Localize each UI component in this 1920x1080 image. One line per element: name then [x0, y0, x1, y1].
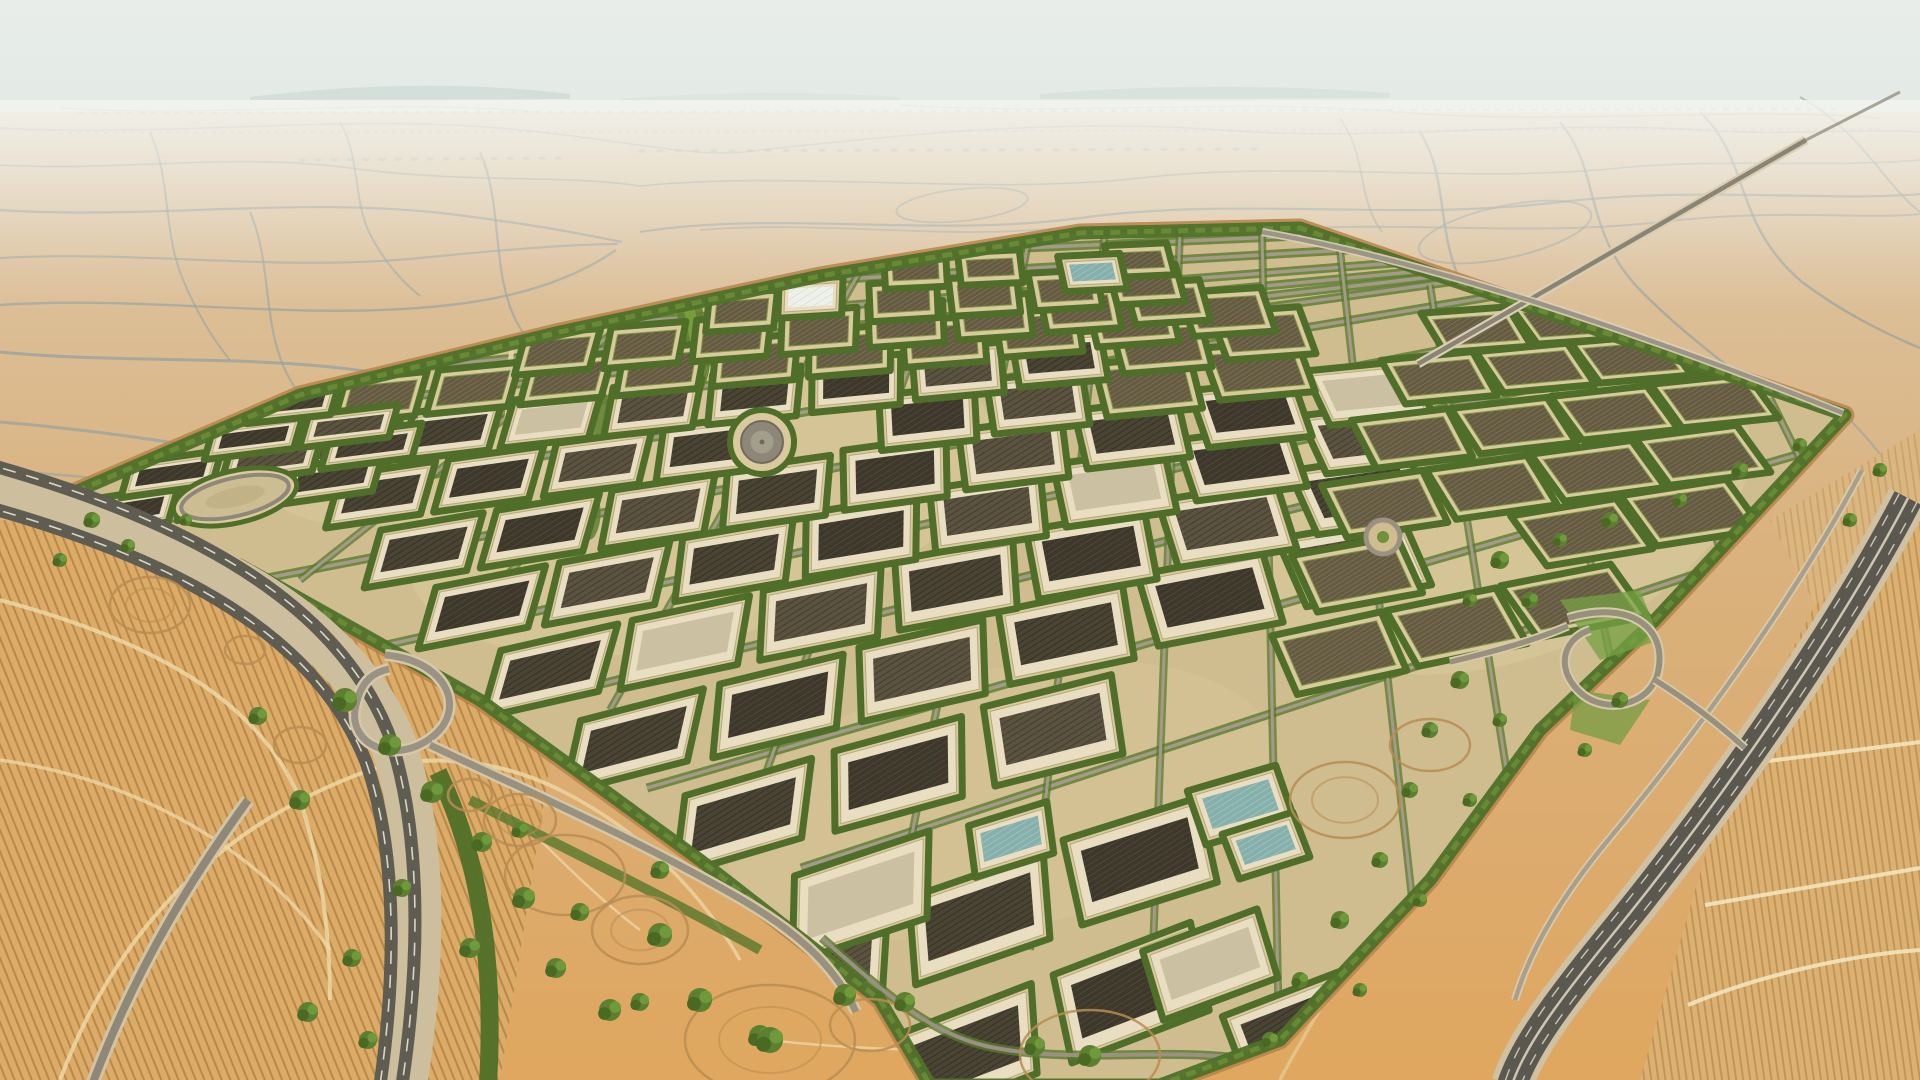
crop-rows — [966, 258, 1014, 277]
aerial-photograph: Aerial photograph of a vast diamond-shap… — [0, 0, 1920, 1080]
greenhouse-plot — [603, 321, 686, 368]
circular-tank — [730, 410, 794, 474]
teal-roof — [1069, 263, 1116, 282]
roundabout — [1366, 520, 1400, 554]
aerial-scene: Aerial photograph of a vast diamond-shap… — [0, 0, 1920, 1080]
white-roof — [788, 286, 833, 307]
crop-rows — [1393, 359, 1485, 396]
building-plot — [1058, 253, 1128, 291]
greenhouse-plot — [426, 362, 520, 414]
crop-rows — [613, 330, 677, 360]
